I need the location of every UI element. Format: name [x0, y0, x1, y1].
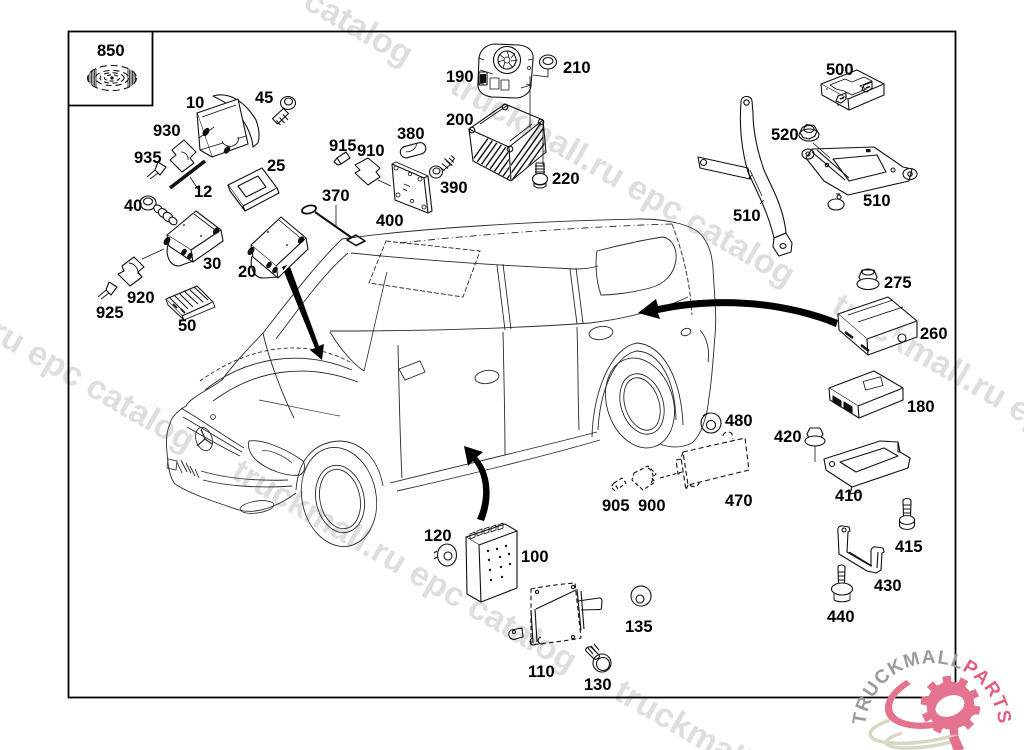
svg-text:400: 400	[376, 212, 404, 230]
svg-text:50: 50	[178, 317, 196, 335]
svg-text:20: 20	[238, 263, 256, 281]
svg-text:415: 415	[895, 538, 923, 556]
svg-text:915: 915	[329, 137, 357, 155]
svg-text:510: 510	[733, 207, 761, 225]
svg-text:925: 925	[96, 304, 124, 322]
svg-text:420: 420	[774, 428, 802, 446]
svg-text:480: 480	[725, 412, 753, 430]
svg-text:370: 370	[322, 187, 350, 205]
svg-text:440: 440	[827, 608, 855, 626]
svg-text:900: 900	[638, 497, 666, 515]
svg-text:220: 220	[552, 170, 580, 188]
svg-text:410: 410	[835, 487, 863, 505]
svg-text:120: 120	[424, 527, 452, 545]
svg-text:380: 380	[397, 125, 425, 143]
svg-text:905: 905	[602, 497, 630, 515]
svg-text:390: 390	[440, 179, 468, 197]
svg-text:210: 210	[563, 59, 591, 77]
svg-text:25: 25	[267, 157, 285, 175]
svg-text:850: 850	[97, 42, 125, 60]
svg-text:180: 180	[907, 398, 935, 416]
svg-text:260: 260	[920, 325, 948, 343]
svg-text:100: 100	[521, 548, 549, 566]
svg-text:510: 510	[863, 192, 891, 210]
svg-text:110: 110	[528, 663, 555, 681]
svg-text:935: 935	[134, 149, 162, 167]
svg-text:430: 430	[874, 577, 902, 595]
svg-text:500: 500	[826, 61, 854, 79]
svg-text:130: 130	[584, 676, 612, 694]
svg-text:135: 135	[625, 618, 653, 636]
svg-text:190: 190	[446, 68, 474, 86]
svg-text:930: 930	[153, 122, 181, 140]
svg-text:910: 910	[357, 142, 385, 160]
svg-text:470: 470	[725, 492, 753, 510]
svg-text:12: 12	[194, 183, 212, 201]
svg-text:40: 40	[124, 197, 142, 215]
svg-text:520: 520	[771, 126, 799, 144]
svg-text:200: 200	[446, 111, 474, 129]
svg-text:45: 45	[255, 89, 273, 107]
svg-text:920: 920	[127, 289, 155, 307]
svg-text:30: 30	[203, 255, 221, 273]
svg-text:275: 275	[884, 274, 912, 292]
svg-text:10: 10	[186, 94, 204, 112]
